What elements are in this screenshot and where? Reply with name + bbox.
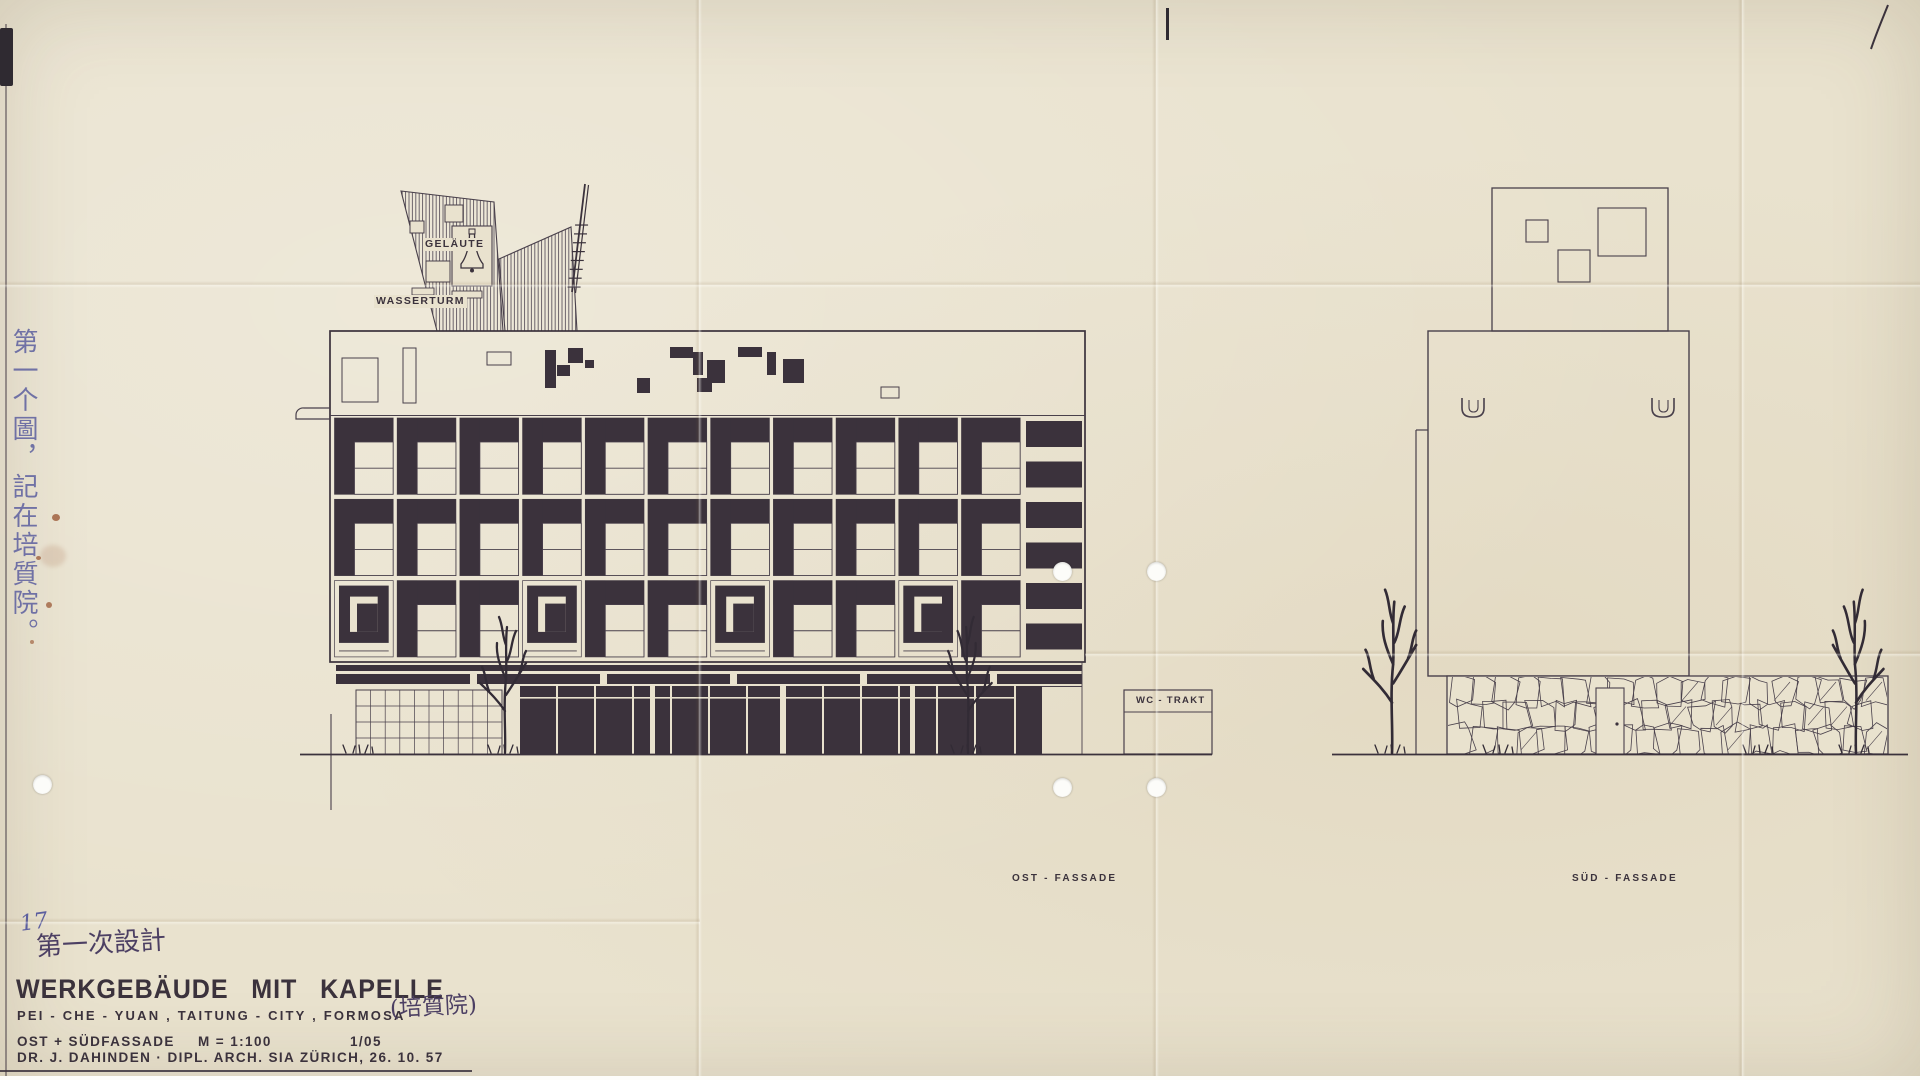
paper-edge — [0, 1076, 1920, 1080]
door — [1596, 688, 1624, 754]
rust-stain — [40, 545, 66, 567]
south-elevation — [1332, 188, 1908, 759]
punch-hole — [1147, 778, 1166, 797]
rust-stain — [52, 514, 60, 521]
rust-stain — [30, 640, 34, 644]
facade-grid — [335, 418, 1021, 657]
east-facade-label: OST - FASSADE — [1012, 874, 1117, 884]
bell-label: GELÄUTE — [423, 238, 486, 251]
architect-line: DR. J. DAHINDEN · DIPL. ARCH. SIA ZÜRICH… — [17, 1051, 444, 1065]
roof-level-openings — [342, 347, 899, 403]
stair-window-strip — [1026, 421, 1082, 650]
sheet-index: 1/05 — [350, 1035, 382, 1049]
water-tower-label: WASSERTURM — [374, 295, 467, 308]
fold-crease — [1738, 0, 1745, 1080]
title-block-rule — [0, 1070, 472, 1072]
project-name-chinese: (培質院) — [389, 994, 477, 1022]
punch-hole — [1053, 562, 1072, 581]
antenna-mast — [572, 184, 589, 293]
pen-stroke-mark — [1871, 5, 1888, 49]
rooftop-volume — [1492, 188, 1668, 331]
drawing-name: OST + SÜDFASSADE — [17, 1035, 175, 1049]
margin-note-chinese: 第一个圖，記在培質院。 — [10, 328, 36, 648]
drawing-title: WERKGEBÄUDE MIT KAPELLE — [16, 976, 444, 1003]
punch-hole — [1147, 562, 1166, 581]
fold-crease — [0, 918, 700, 925]
rust-stain — [46, 602, 52, 608]
fold-crease — [0, 281, 1920, 288]
wc-annex-label: WC - TRAKT — [1136, 696, 1205, 706]
first-design-note: 第一次設計 — [35, 928, 166, 961]
scan-edge-mark — [0, 28, 13, 86]
tick-mark — [1166, 8, 1169, 40]
bell-tower — [401, 184, 589, 331]
stone-base-wall — [1447, 673, 1889, 759]
drawing-sheet: GELÄUTE WASSERTURM WC - TRAKT OST - FASS… — [0, 0, 1920, 1080]
chapel-tower — [1416, 188, 1689, 754]
punch-hole — [1053, 778, 1072, 797]
workshop-building — [296, 331, 1085, 754]
project-location: PEI - CHE - YUAN , TAITUNG - CITY , FORM… — [17, 1009, 406, 1022]
drawing-scale: M = 1:100 — [198, 1035, 272, 1049]
entrance-canopy — [296, 408, 330, 419]
east-elevation — [296, 184, 1212, 810]
south-facade-label: SÜD - FASSADE — [1572, 874, 1678, 884]
punch-hole — [33, 775, 52, 794]
fold-crease — [1152, 0, 1159, 1080]
fold-crease — [1085, 650, 1920, 657]
